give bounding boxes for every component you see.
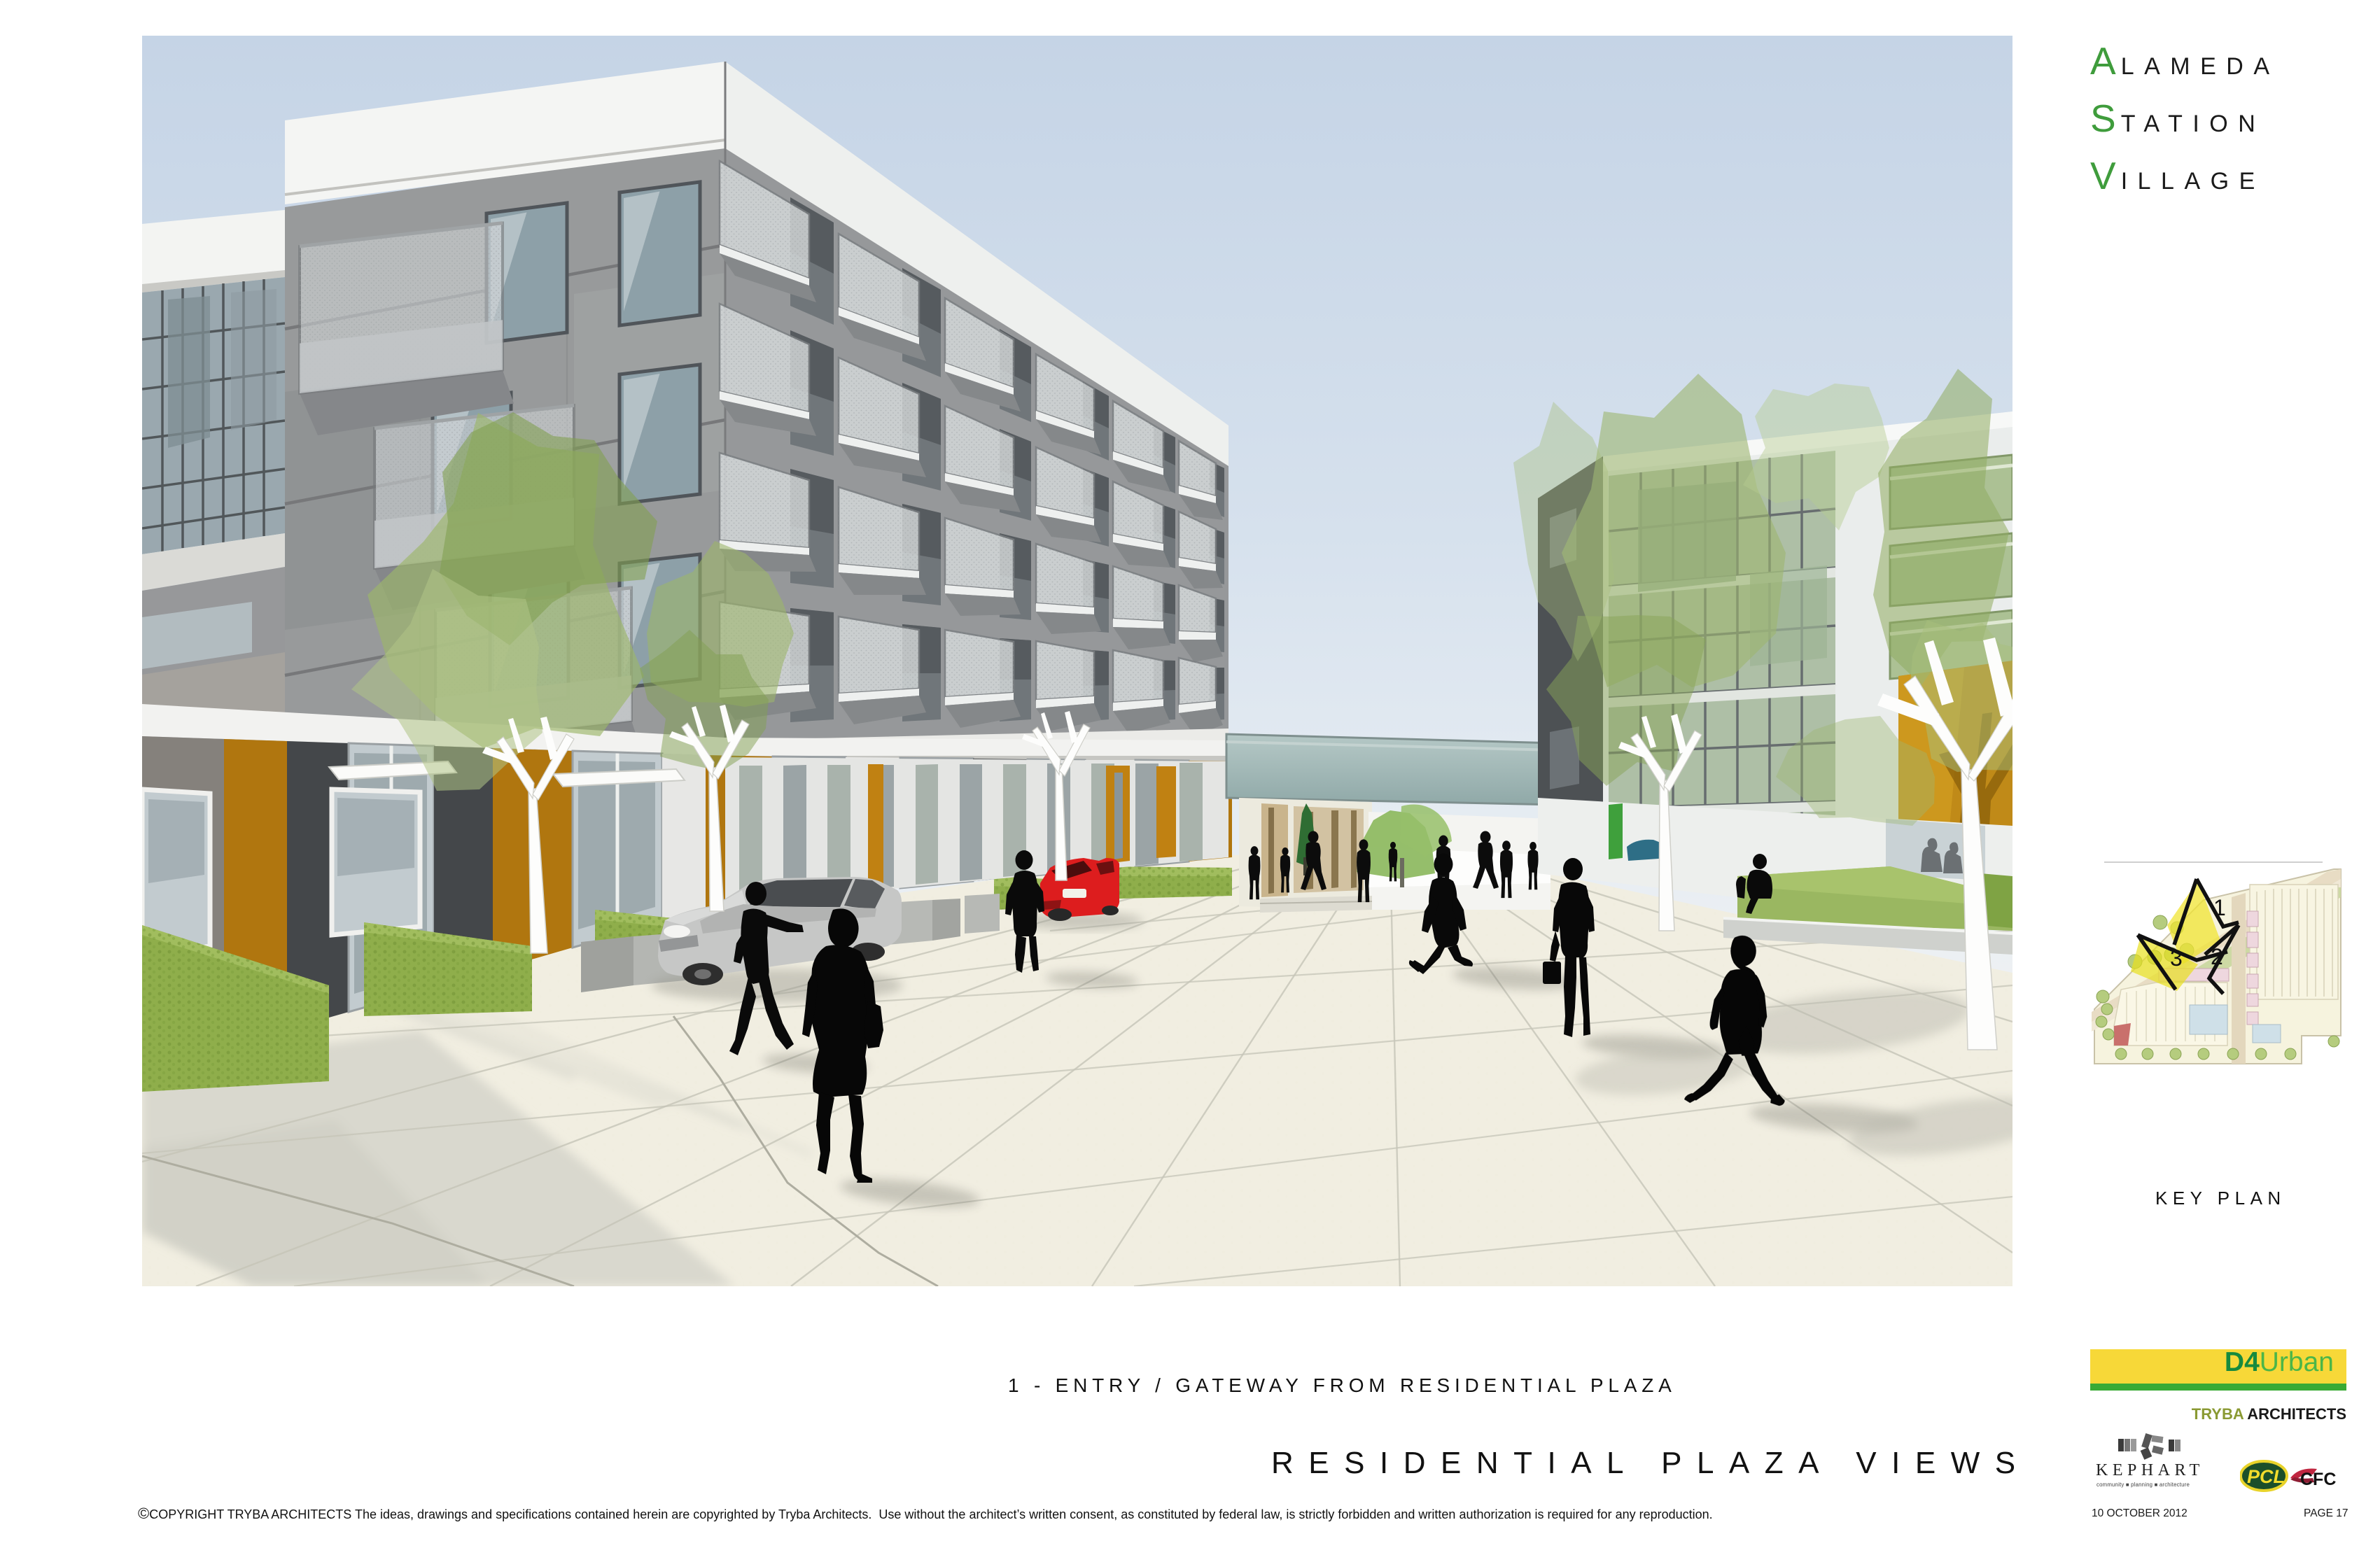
svg-text:1: 1 xyxy=(2213,895,2226,920)
svg-text:KEPHART: KEPHART xyxy=(2096,1461,2204,1479)
svg-text:3: 3 xyxy=(2170,945,2183,971)
svg-text:CFC: CFC xyxy=(2300,1470,2336,1489)
svg-text:2: 2 xyxy=(2211,944,2223,969)
svg-text:PCL: PCL xyxy=(2247,1466,2285,1487)
svg-text:community ■ planning ■ archite: community ■ planning ■ architecture xyxy=(2096,1482,2190,1488)
